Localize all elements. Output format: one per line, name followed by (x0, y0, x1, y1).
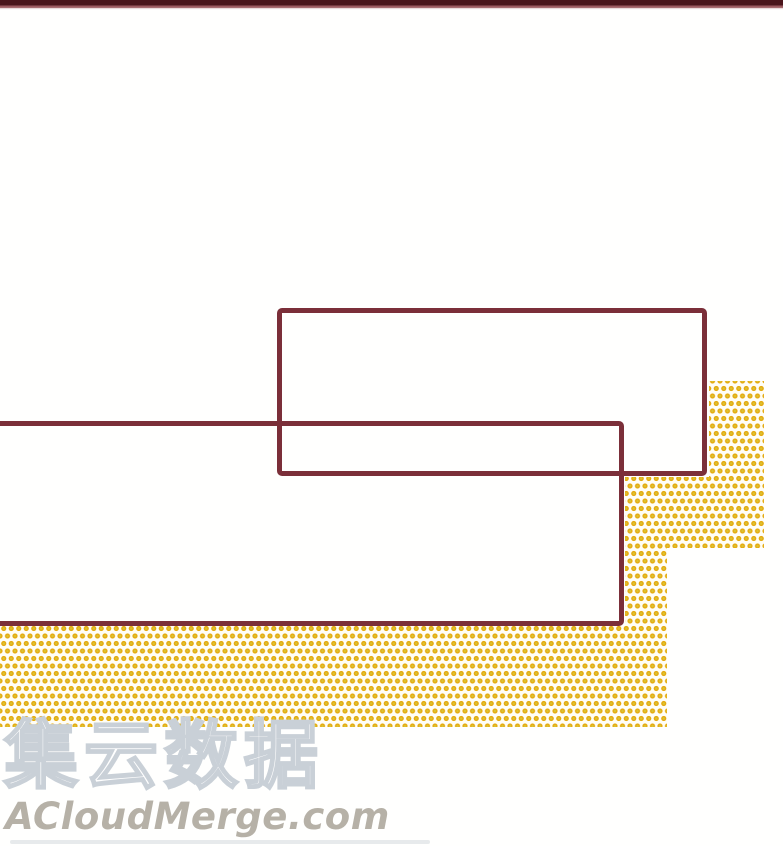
watermark-cropped-artifact (10, 840, 430, 844)
comic-page: 集云数据 ACloudMerge.com (0, 0, 783, 846)
watermark-site-url: ACloudMerge.com (5, 795, 390, 838)
watermark-site-name: 集云数据 (4, 716, 424, 797)
page-top-border (0, 0, 783, 10)
speech-box-bottom (0, 421, 624, 626)
